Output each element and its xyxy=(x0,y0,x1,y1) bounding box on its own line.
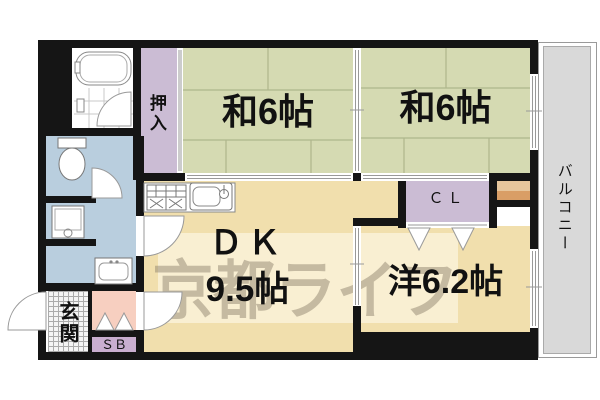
toilet-door-arc xyxy=(92,168,122,198)
youshitsu-label: 洋6.2帖 xyxy=(361,265,530,301)
oshiire-label: 押入 xyxy=(147,84,165,144)
stove-icon xyxy=(147,185,186,210)
fixtures-layer xyxy=(0,0,600,400)
toilet-icon xyxy=(58,138,86,180)
cl-label: ＣＬ xyxy=(406,191,489,207)
shoebox-door-icon xyxy=(96,313,133,330)
shower-faucet-icon xyxy=(77,99,84,112)
dk-name-label: ＤＫ xyxy=(160,226,335,261)
genkan-label: 玄関 xyxy=(56,297,77,349)
bathroom-door-arc xyxy=(97,92,131,126)
shoebox-label: ＳＢ xyxy=(92,338,136,352)
floor-plan: 京都ライフ xyxy=(0,0,600,400)
entrance-door-arc xyxy=(8,292,46,330)
kitchen-sink-icon xyxy=(190,183,232,210)
washitsu1-label: 和6帖 xyxy=(183,93,353,131)
washbasin-icon xyxy=(95,258,132,284)
dk-size-label: 9.5帖 xyxy=(160,272,335,309)
cl-folding-door-icon xyxy=(408,228,474,250)
bathtub-icon xyxy=(75,52,131,85)
balcony-label: バルコニー xyxy=(556,148,572,268)
washitsu2-label: 和6帖 xyxy=(361,89,530,127)
washing-machine-icon xyxy=(52,206,84,238)
